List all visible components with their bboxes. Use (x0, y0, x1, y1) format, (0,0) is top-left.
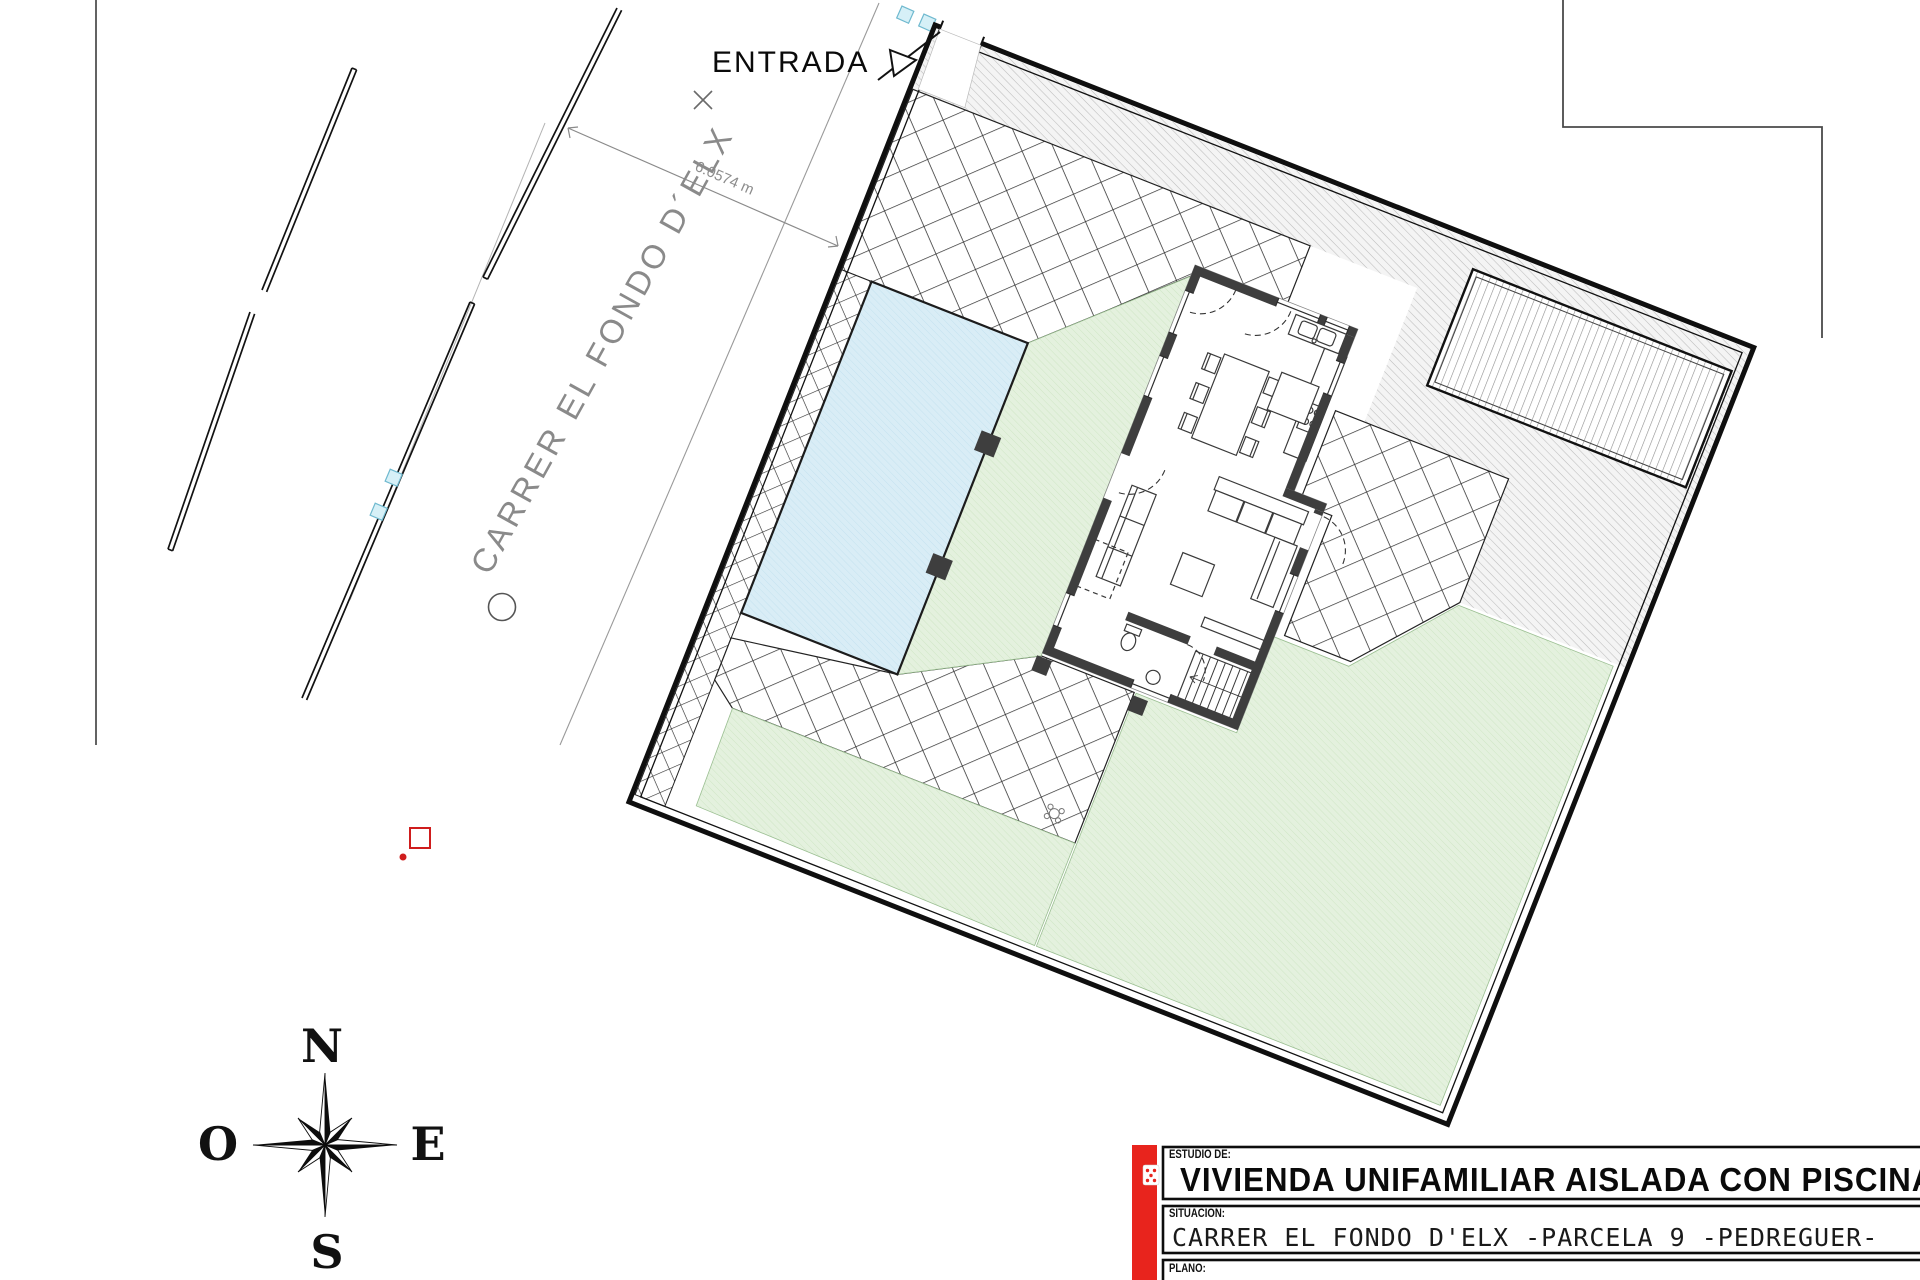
compass-rose: N E S O (198, 1019, 446, 1279)
estudio-label: ESTUDIO DE: (1169, 1148, 1231, 1161)
grip-icon (385, 469, 402, 486)
compass-south-label: S (310, 1225, 343, 1279)
compass-east-label: E (410, 1117, 445, 1171)
compass-north-label: N (301, 1019, 343, 1073)
compass-west-label: O (198, 1117, 238, 1171)
plot (629, 18, 1756, 1124)
situacion-value: CARRER EL FONDO D'ELX -PARCELA 9 -PEDREG… (1172, 1223, 1878, 1252)
entrance-label: ENTRADA (712, 46, 869, 79)
north-star-icon (253, 1073, 397, 1217)
situacion-label: SITUACION: (1169, 1207, 1225, 1220)
estudio-value: VIVIENDA UNIFAMILIAR AISLADA CON PISCINA (1180, 1161, 1920, 1198)
survey-cross-icon (694, 91, 712, 109)
title-box-plano (1163, 1260, 1920, 1280)
title-block: ESTUDIO DE: VIVIENDA UNIFAMILIAR AISLADA… (1132, 1145, 1920, 1280)
street-name-label: CARRER EL FONDO D´ELX (463, 119, 741, 580)
utility-red-square-icon (410, 828, 430, 848)
logo-icon (1143, 1165, 1159, 1185)
utility-red-dot-icon (400, 854, 407, 861)
grip-icon (897, 6, 914, 23)
survey-circle-icon (489, 594, 516, 621)
plano-label: PLANO: (1169, 1262, 1206, 1275)
street-left-curb (168, 68, 357, 551)
site-plan-page: CARRER EL FONDO D´ELX 6.0574 m ENTRADA N… (0, 0, 1920, 1280)
site-plan: CARRER EL FONDO D´ELX 6.0574 m ENTRADA N… (0, 0, 1920, 1280)
street-right-curb (302, 8, 622, 700)
